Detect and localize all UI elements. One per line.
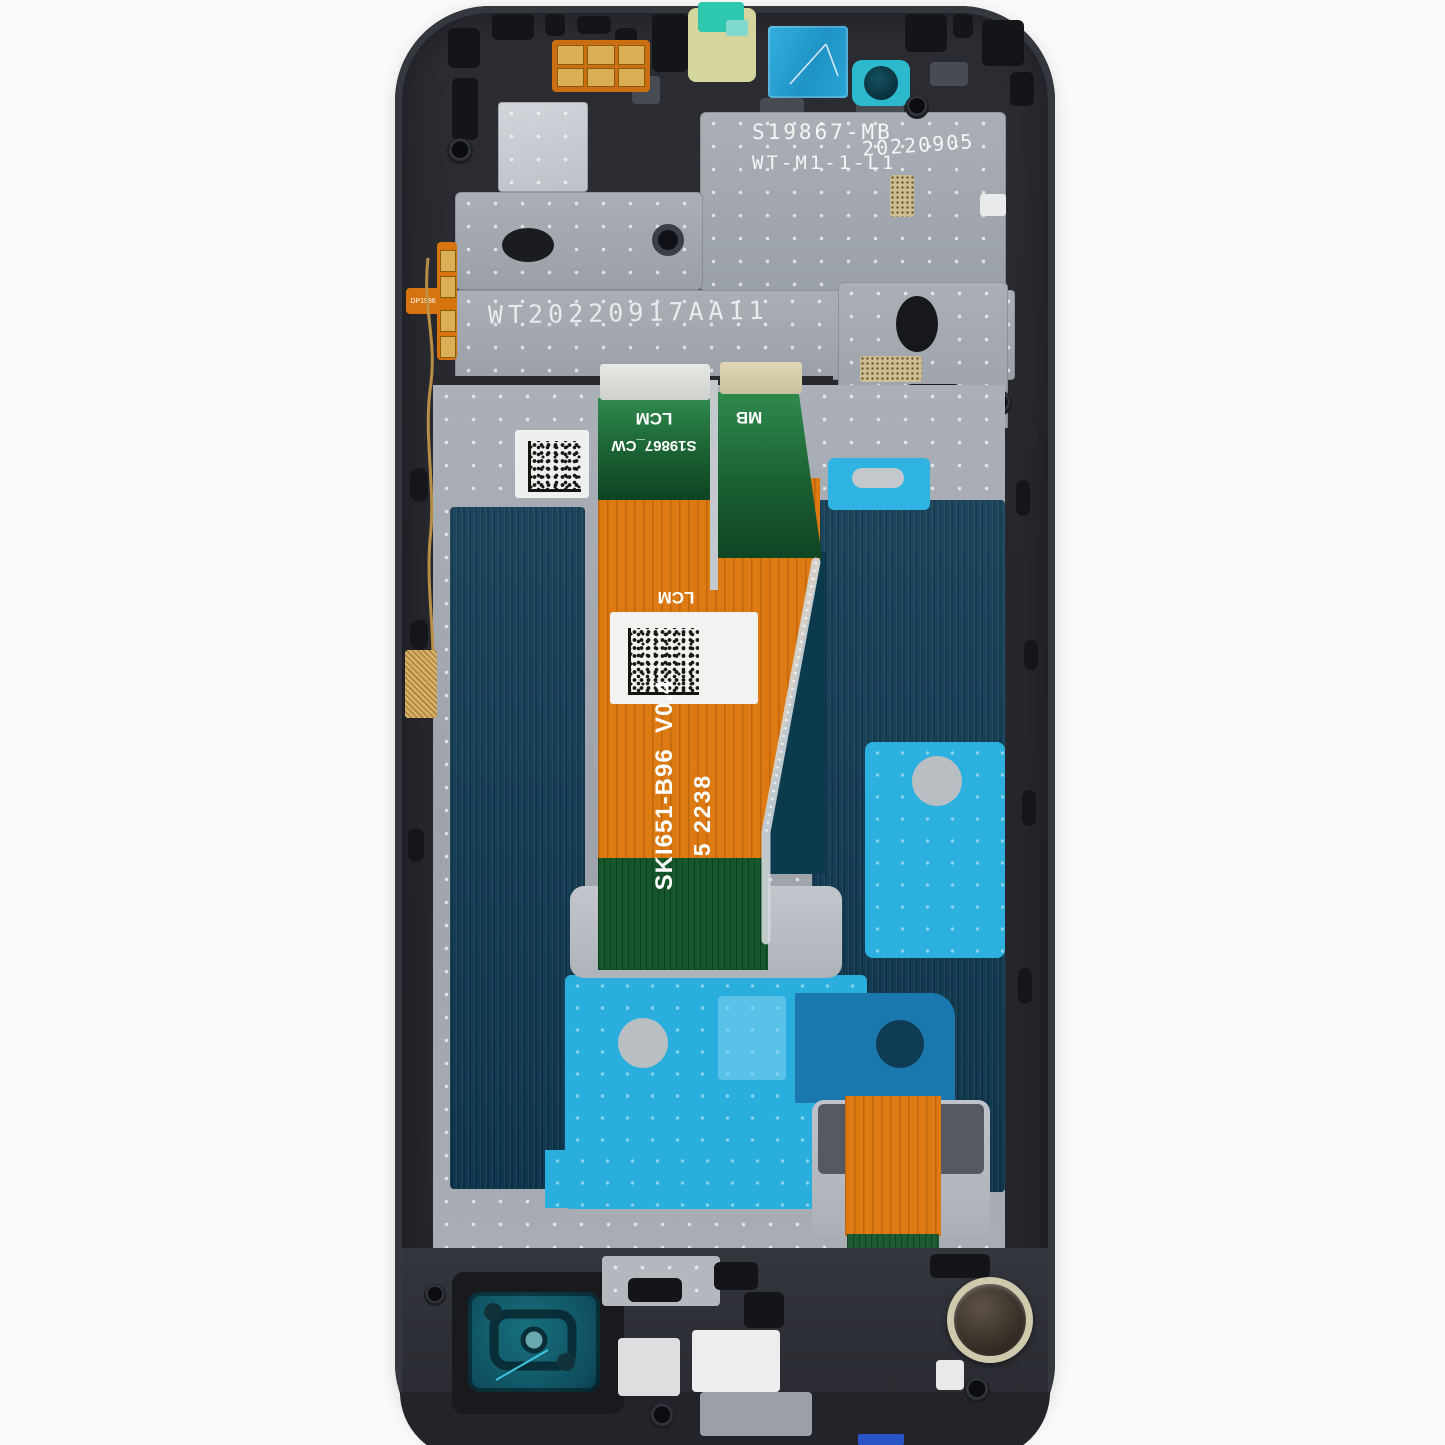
blue-film-scratch xyxy=(768,26,848,98)
flex-gap-strip xyxy=(710,380,718,590)
screw-hole xyxy=(964,1377,990,1403)
screw-opening xyxy=(912,756,962,806)
camera-oval-hole xyxy=(896,296,938,352)
gold-speckle-sticker xyxy=(860,356,922,382)
frame-cutout xyxy=(714,1262,758,1290)
bottom-flex-orange xyxy=(845,1096,941,1236)
dark-blue-adhesive-patch xyxy=(795,993,955,1103)
photo-canvas: S19867-MB WT-M1-1-L1 20220905 WT20220917… xyxy=(0,0,1445,1445)
frame-cutout xyxy=(652,14,688,72)
gold-contact-pad xyxy=(557,68,584,88)
screw-hole xyxy=(649,1403,675,1429)
vibration-motor xyxy=(947,1277,1033,1363)
frame-slot xyxy=(1018,968,1032,1004)
frame-cutout xyxy=(448,28,480,68)
frame-cutout xyxy=(982,20,1024,66)
frame-cutout xyxy=(545,14,565,36)
datamatrix-code xyxy=(528,441,581,492)
tab-oval-slot xyxy=(852,468,904,488)
gold-speckle-sticker xyxy=(890,175,914,217)
frame-cutout xyxy=(953,14,973,38)
front-camera-window xyxy=(864,66,898,100)
frame-cutout xyxy=(577,16,611,34)
frame-cutout xyxy=(930,1254,990,1278)
teal-sticker-inner xyxy=(726,20,748,36)
lcm-connector-label: LCM xyxy=(624,407,684,429)
frame-cutout xyxy=(452,78,478,140)
bottom-connector-blue xyxy=(858,1434,904,1445)
frame-cutout xyxy=(905,14,947,52)
screw-hole xyxy=(905,95,929,119)
frame-slot xyxy=(408,828,424,862)
mb-connector-cap xyxy=(720,362,802,394)
silver-square-plate xyxy=(498,102,588,192)
frame-cutout xyxy=(492,14,534,40)
frame-slot xyxy=(1022,790,1036,826)
glitter-edge xyxy=(740,540,840,960)
lcm-mid-label: LCM xyxy=(646,585,706,609)
bottom-gray-patch xyxy=(700,1392,812,1436)
frame-slot xyxy=(1016,480,1030,516)
frame-cutout xyxy=(1010,72,1034,106)
bottom-white-patch xyxy=(618,1338,680,1396)
screw-hole xyxy=(447,138,473,164)
antenna-contact-flex xyxy=(552,40,650,92)
gold-contact-pad xyxy=(557,45,584,65)
frame-cutout xyxy=(628,1278,682,1302)
lcm-connector-cap xyxy=(600,364,710,400)
mb-connector-label: MB xyxy=(719,406,779,428)
flex-batch-code: 5 2238 xyxy=(687,755,717,875)
gold-contact-pad xyxy=(587,68,614,88)
gold-contact-pad xyxy=(618,68,645,88)
frame-slot xyxy=(1024,640,1038,670)
screw-opening xyxy=(618,1018,668,1068)
frame-rib xyxy=(930,62,968,86)
flex-part-number: SKI651-B96 V0.4 xyxy=(648,685,682,885)
bottom-white-patch xyxy=(692,1330,780,1392)
white-tab xyxy=(980,194,1006,216)
white-square-pad xyxy=(936,1360,964,1390)
screw-hole xyxy=(424,1284,446,1306)
mic-oval-hole xyxy=(502,228,554,262)
adhesive-square-light xyxy=(718,996,786,1080)
gold-contact-pad xyxy=(587,45,614,65)
gold-contact-pad xyxy=(618,45,645,65)
camera-opening-circle xyxy=(876,1020,924,1068)
lcm-flex-serial: S19867_CW xyxy=(594,436,714,456)
gold-fabric-pad xyxy=(405,650,437,718)
speaker-membrane-channel xyxy=(468,1292,600,1392)
etched-serial-text: WT20220917AA11 xyxy=(488,295,789,332)
frame-cutout xyxy=(744,1292,784,1328)
screw-boss xyxy=(652,224,684,256)
